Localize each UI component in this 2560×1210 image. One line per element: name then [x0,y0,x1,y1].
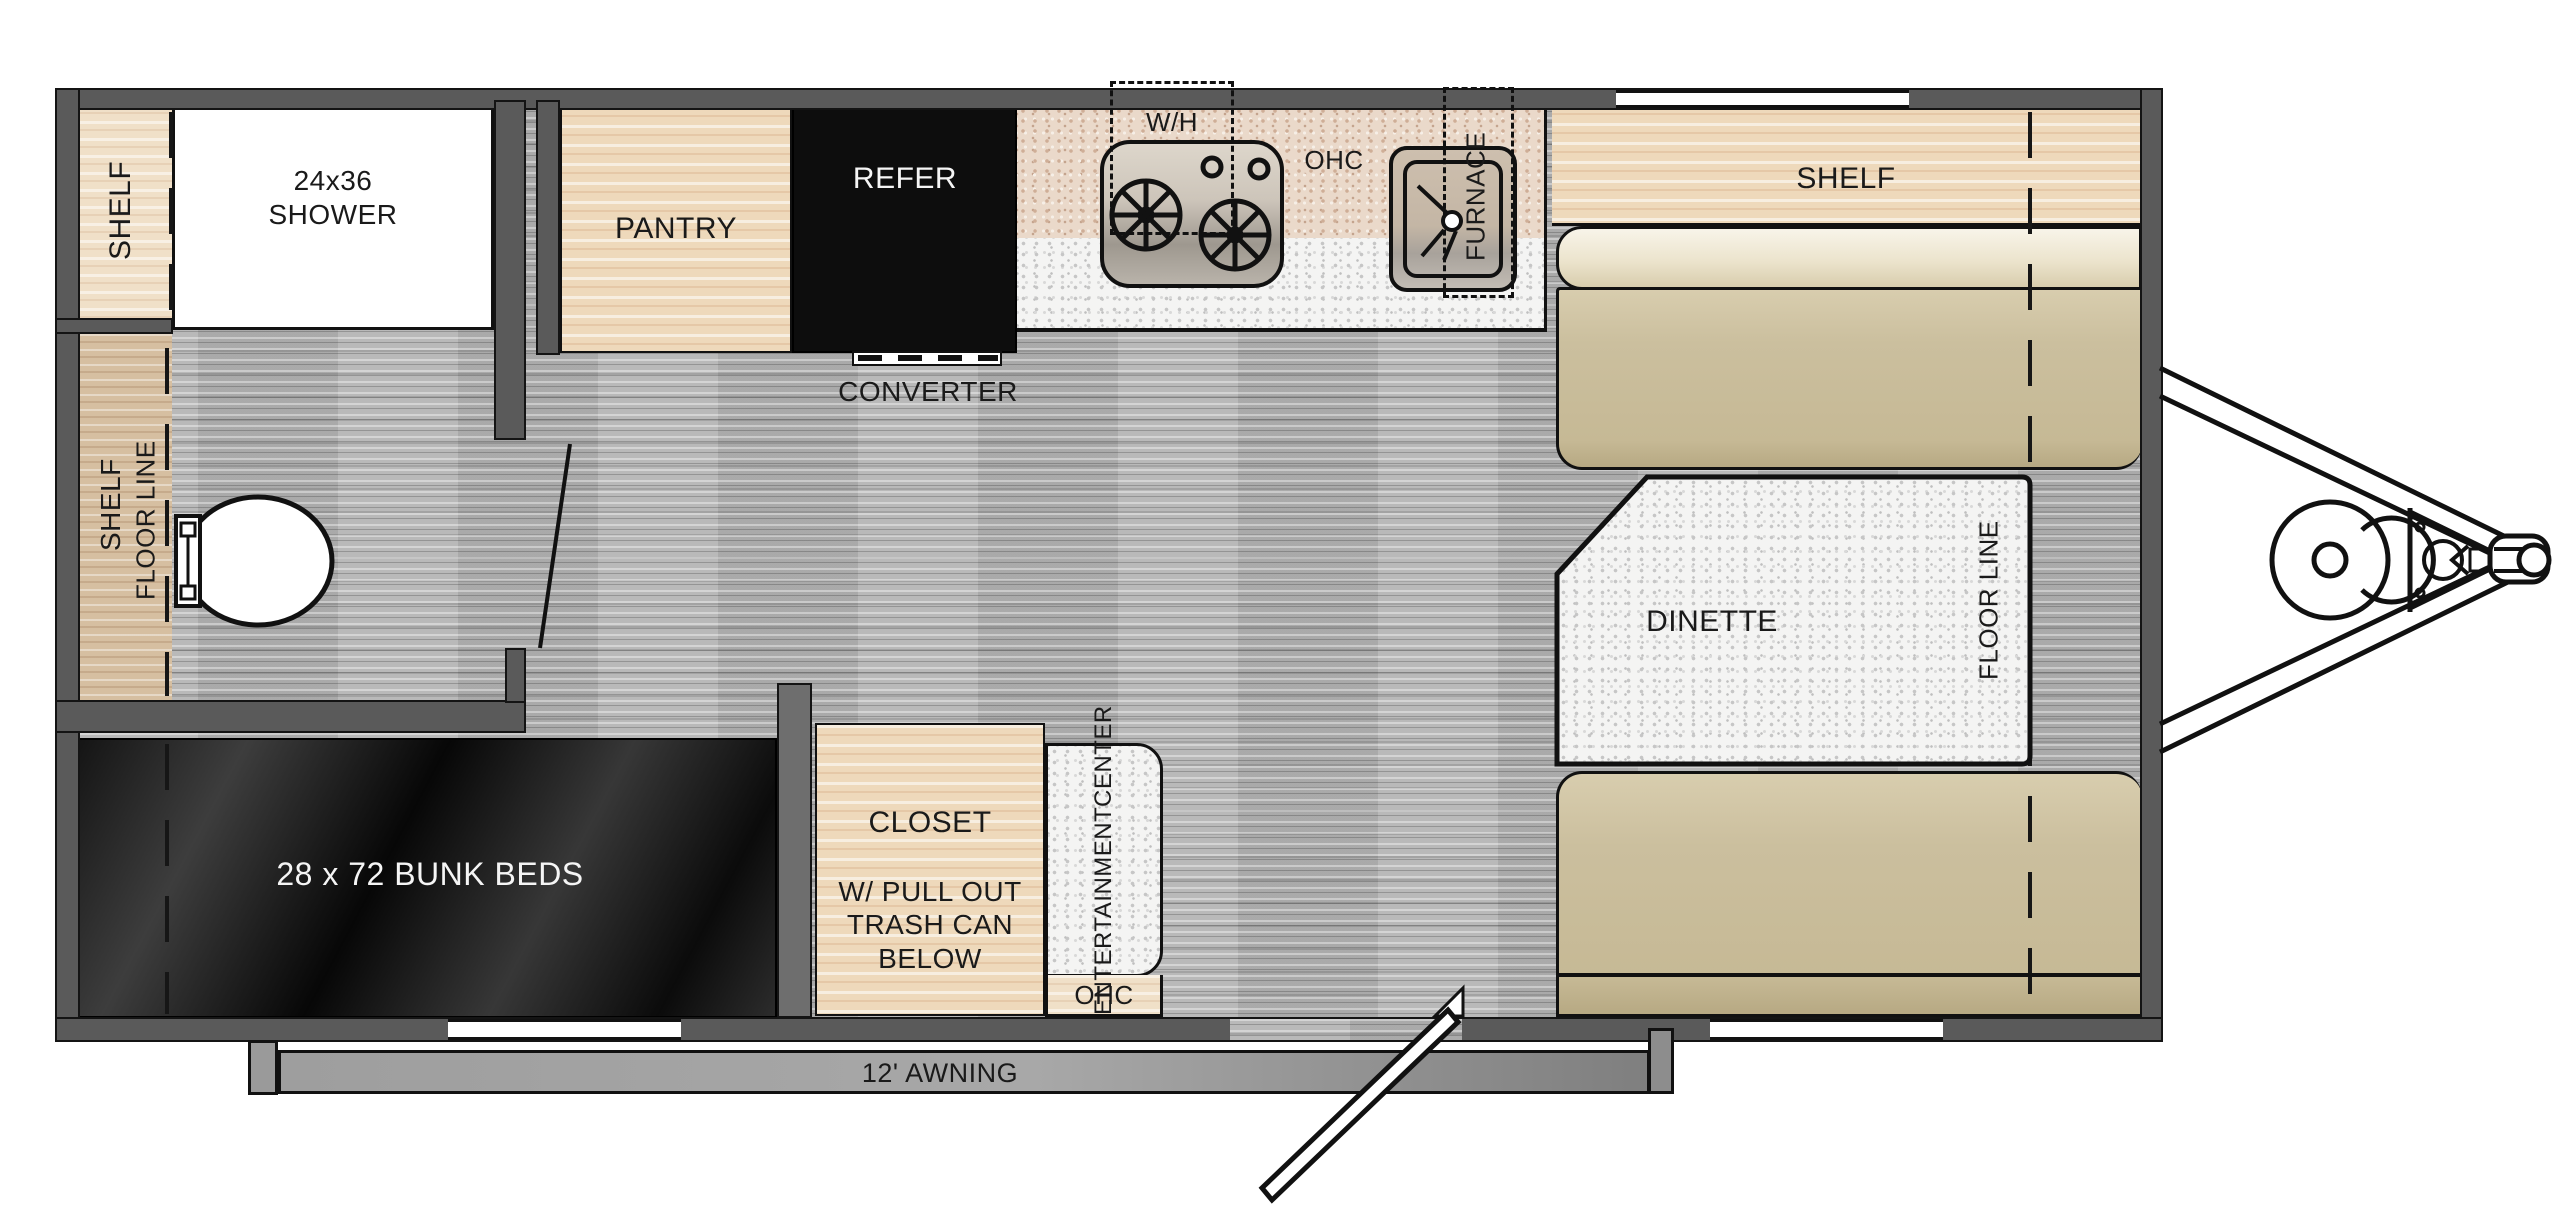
floor-plan-canvas: SHELF 24x36 SHOWER SHELF FLOOR LINE PANT… [0,0,2560,1210]
stove-burners-icon [1112,158,1269,269]
entry-door-leaf [1262,988,1463,1200]
floor-line-dashes [167,112,2030,1014]
dinette-table-outline [1557,477,2030,764]
furnace-gauge-icon [1418,186,1461,260]
linework-overlay [0,0,2560,1210]
toilet-icon [176,497,332,625]
hitch-assembly [2160,368,2549,752]
bath-door-swing [540,444,570,648]
